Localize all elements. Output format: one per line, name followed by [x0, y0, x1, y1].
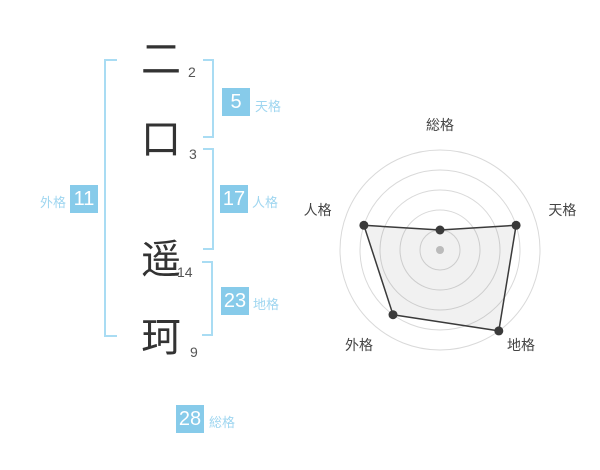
radar-vertex-dot	[512, 221, 521, 230]
soukaku-label: 総格	[209, 412, 235, 431]
radar-axis-label: 人格	[304, 202, 332, 218]
radar-axis-label: 総格	[426, 117, 454, 133]
radar-polygon	[364, 225, 516, 331]
tenkaku-bracket	[203, 59, 214, 138]
radar-chart-svg: 総格天格地格外格人格	[290, 108, 590, 388]
name-character-1: 二	[139, 38, 183, 82]
radar-vertex-dot	[389, 310, 398, 319]
jinkaku-bracket	[203, 148, 214, 250]
gaikaku-bracket	[104, 59, 117, 337]
tenkaku-value-badge: 5	[222, 88, 250, 116]
stroke-count-4: 9	[190, 344, 198, 360]
radar-vertex-dot	[494, 326, 503, 335]
chikaku-bracket	[202, 261, 213, 336]
stroke-count-3: 14	[177, 264, 193, 280]
chikaku-label: 地格	[253, 294, 279, 313]
gaikaku-value-badge: 11	[70, 185, 98, 213]
radar-vertex-dot	[436, 226, 445, 235]
soukaku-value-badge: 28	[176, 405, 204, 433]
name-analysis-page: 二 口 遥 珂 2 3 14 9 5 天格 17 人格 外格 11 23 地格 …	[0, 0, 600, 470]
gaikaku-label: 外格	[40, 192, 66, 211]
chikaku-value-badge: 23	[221, 287, 249, 315]
name-character-2: 口	[139, 118, 183, 162]
tenkaku-label: 天格	[255, 96, 281, 115]
radar-vertex-dot	[359, 221, 368, 230]
radar-axis-label: 地格	[507, 337, 535, 353]
radar-axis-label: 天格	[548, 202, 576, 218]
name-character-4: 珂	[139, 316, 183, 360]
stroke-count-1: 2	[188, 64, 196, 80]
radar-chart: 総格天格地格外格人格	[290, 108, 590, 388]
stroke-count-2: 3	[189, 146, 197, 162]
radar-axis-label: 外格	[345, 337, 373, 353]
jinkaku-value-badge: 17	[220, 185, 248, 213]
jinkaku-label: 人格	[252, 192, 278, 211]
